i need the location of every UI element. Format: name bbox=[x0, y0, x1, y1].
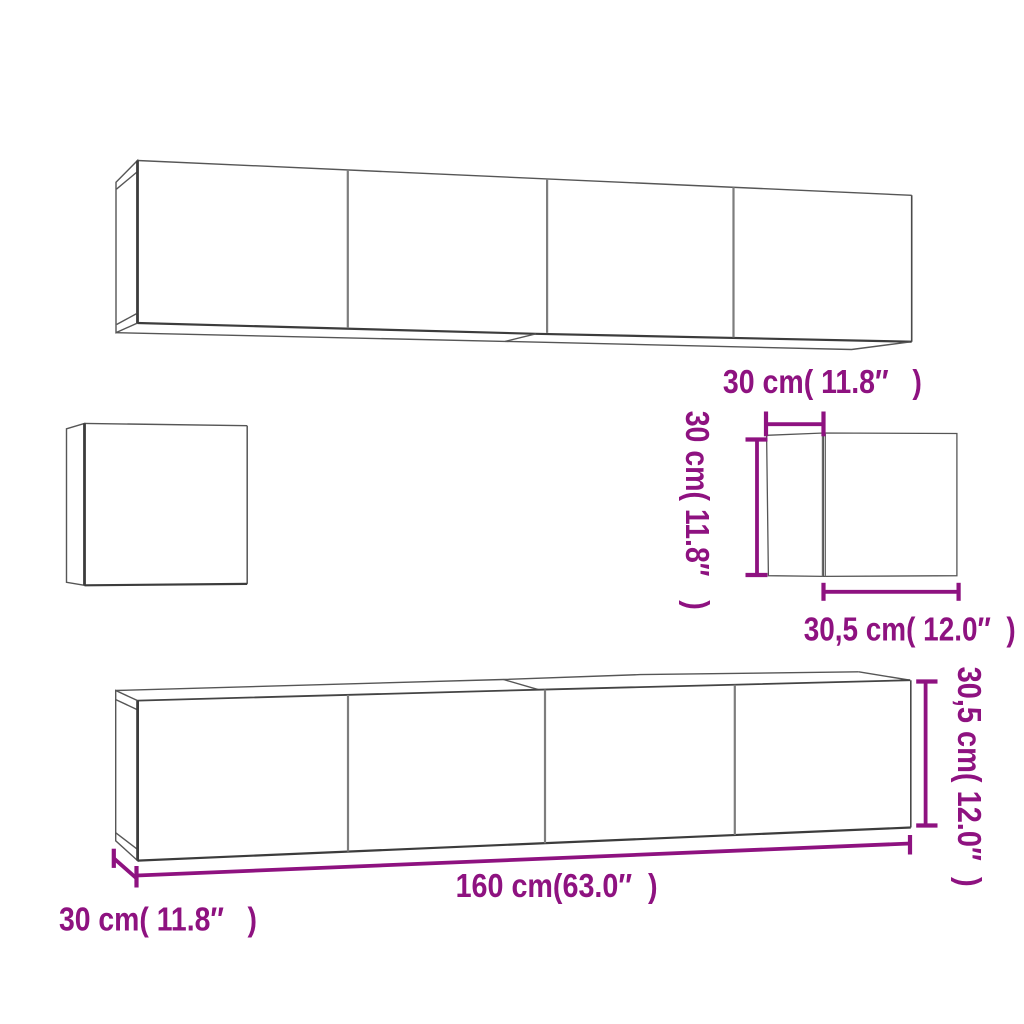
svg-text:30 cm( 11.8″ ): 30 cm( 11.8″ ) bbox=[59, 901, 257, 938]
svg-text:160 cm(63.0″ ): 160 cm(63.0″ ) bbox=[456, 867, 658, 904]
svg-text:30,5 cm( 12.0″ ): 30,5 cm( 12.0″ ) bbox=[951, 667, 988, 887]
svg-text:30 cm( 11.8″ ): 30 cm( 11.8″ ) bbox=[723, 363, 922, 400]
svg-text:30 cm( 11.8″ ): 30 cm( 11.8″ ) bbox=[679, 411, 716, 610]
svg-text:30,5 cm( 12.0″ ): 30,5 cm( 12.0″ ) bbox=[804, 610, 1016, 647]
